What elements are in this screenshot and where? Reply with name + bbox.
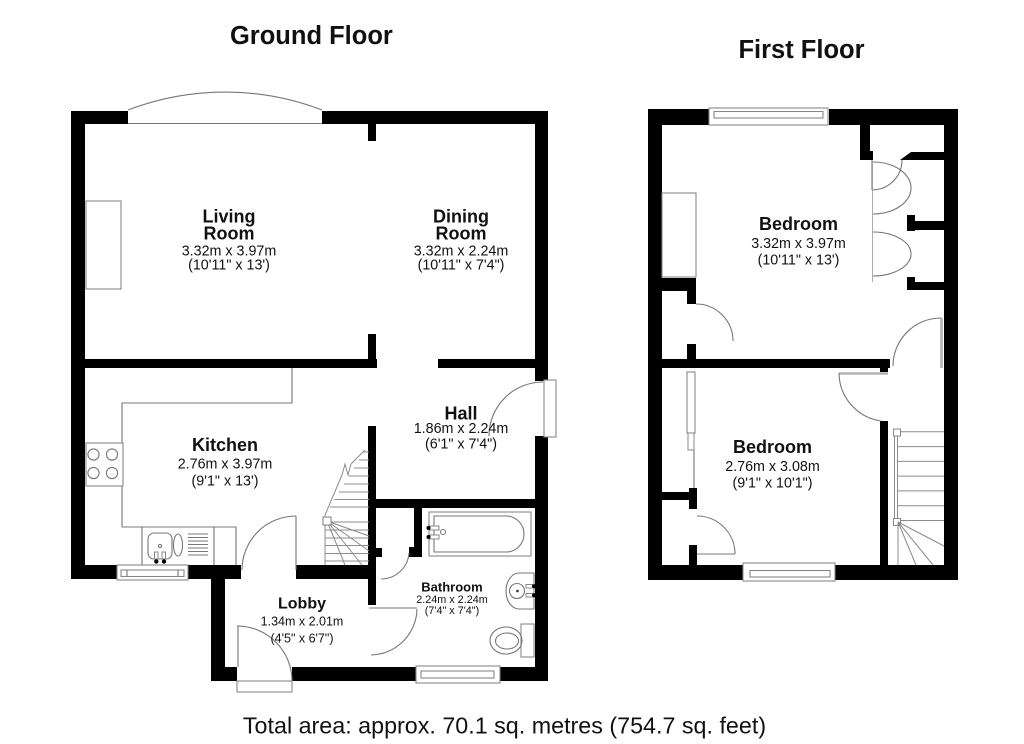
svg-text:(9'1" x 13'): (9'1" x 13') (192, 474, 259, 490)
svg-text:Bedroom: Bedroom (759, 214, 838, 234)
svg-text:Bathroom: Bathroom (421, 580, 482, 595)
svg-text:(10'11" x 7'4"): (10'11" x 7'4") (418, 257, 505, 273)
svg-text:1.86m x 2.24m: 1.86m x 2.24m (414, 421, 509, 437)
svg-text:Room: Room (204, 224, 255, 244)
svg-text:(9'1" x 10'1"): (9'1" x 10'1") (733, 476, 813, 492)
svg-text:3.32m x 3.97m: 3.32m x 3.97m (751, 236, 846, 252)
svg-text:(10'11" x 13'): (10'11" x 13') (188, 258, 270, 274)
svg-text:(7'4" x 7'4"): (7'4" x 7'4") (425, 605, 479, 617)
svg-text:2.76m x 3.08m: 2.76m x 3.08m (725, 459, 820, 475)
svg-text:Kitchen: Kitchen (192, 435, 258, 455)
svg-text:Bedroom: Bedroom (733, 437, 812, 457)
svg-text:Lobby: Lobby (278, 596, 326, 613)
svg-text:(4'5" x 6'7"): (4'5" x 6'7") (271, 632, 334, 646)
svg-text:Total area: approx. 70.1 sq. m: Total area: approx. 70.1 sq. metres (754… (243, 712, 766, 738)
svg-text:1.34m x 2.01m: 1.34m x 2.01m (261, 615, 344, 629)
svg-text:Room: Room (436, 224, 487, 244)
svg-text:(10'11" x 13'): (10'11" x 13') (758, 253, 840, 269)
svg-text:First Floor: First Floor (738, 36, 864, 64)
svg-text:2.76m x 3.97m: 2.76m x 3.97m (178, 457, 273, 473)
svg-text:(6'1" x 7'4"): (6'1" x 7'4") (425, 437, 497, 453)
svg-text:Ground Floor: Ground Floor (230, 22, 393, 50)
